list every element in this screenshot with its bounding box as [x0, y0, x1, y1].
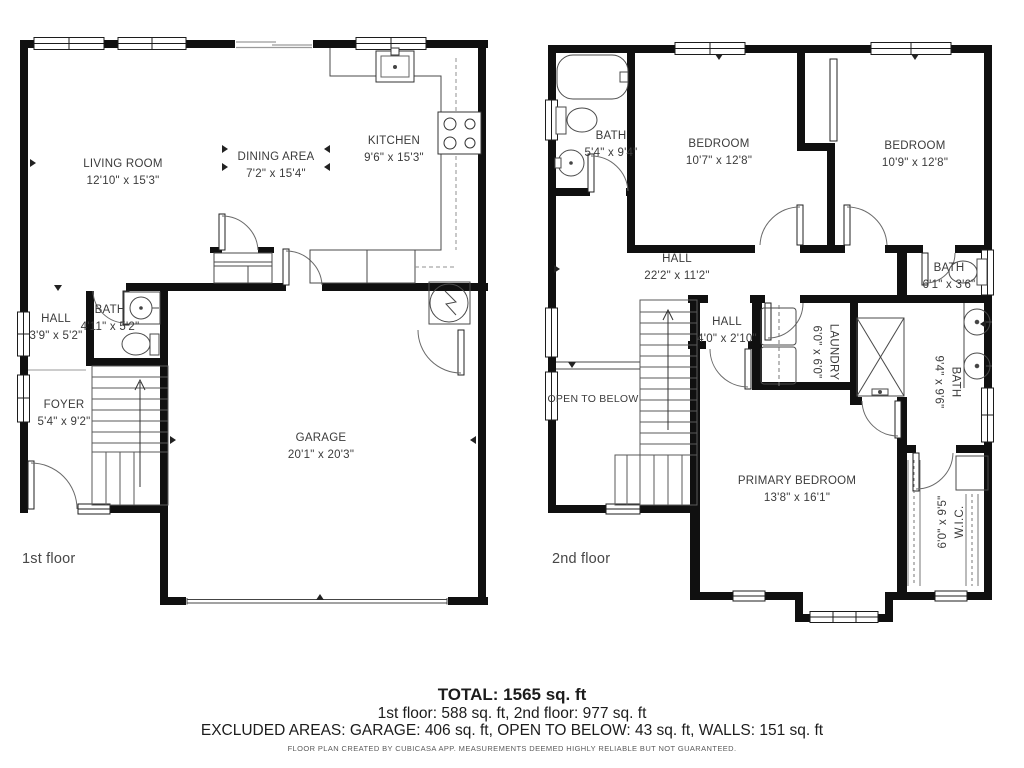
window [118, 38, 186, 50]
floor-plan-drawing [0, 0, 1024, 768]
pantry-door [219, 214, 258, 250]
room-name: W.I.C. [952, 495, 969, 548]
room-label-small-bath: BATH 6'1" x 3'6" [922, 260, 975, 295]
room-label-kitchen: KITCHEN 9'6" x 15'3" [364, 133, 424, 168]
room-name: HALL [644, 251, 709, 268]
primary-bedroom-door [710, 349, 751, 389]
room-dims: 12'10" x 15'3" [83, 173, 162, 190]
primary-bath-door [862, 401, 901, 438]
floor2-caption: 2nd floor [552, 551, 610, 567]
room-label-primary-bath: BATH 9'4" x 9'6" [929, 355, 964, 408]
summary-disclaimer: FLOOR PLAN CREATED BY CUBICASA APP. MEAS… [0, 744, 1024, 753]
room-dims: 20'1" x 20'3" [288, 447, 354, 464]
room-label-wic: 6'0" x 9'5" W.I.C. [935, 495, 970, 548]
room-dims: 6'1" x 3'6" [922, 277, 975, 294]
room-name: OPEN TO BELOW [548, 392, 639, 408]
room-name: BATH [584, 128, 637, 145]
summary-excluded-areas: EXCLUDED AREAS: GARAGE: 406 sq. ft, OPEN… [0, 722, 1024, 740]
open-to-below-railing [556, 362, 640, 369]
room-dims: 9'6" x 15'3" [364, 150, 424, 167]
room-label-hall-2f: HALL 22'2" x 11'2" [644, 251, 709, 286]
room-dims: 10'9" x 12'8" [882, 155, 948, 172]
room-name: BATH [922, 260, 975, 277]
summary-floor-areas: 1st floor: 588 sq. ft, 2nd floor: 977 sq… [0, 705, 1024, 723]
kitchen-sink [376, 48, 414, 82]
room-dims: 9'4" x 9'6" [929, 355, 946, 408]
room-dims: 13'8" x 16'1" [738, 490, 856, 507]
room-name: BEDROOM [686, 136, 752, 153]
bath1-toilet [122, 333, 159, 355]
pantry-closet [214, 253, 272, 283]
room-dims: 5'4" x 9'4" [584, 145, 637, 162]
window [982, 388, 994, 442]
floor1-windows [18, 38, 427, 515]
room-dims: 22'2" x 11'2" [644, 268, 709, 285]
room-name: LAUNDRY [824, 324, 841, 381]
shower [857, 318, 904, 396]
window [871, 43, 951, 55]
window [546, 308, 558, 357]
room-dims: 6'0" x 9'5" [935, 495, 952, 548]
summary-total: TOTAL: 1565 sq. ft [0, 685, 1024, 705]
garage-side-door [418, 330, 464, 375]
room-label-hall-1f: HALL 3'9" x 5'2" [29, 311, 82, 346]
window [18, 312, 30, 356]
room-name: FOYER [37, 397, 90, 414]
room-label-hall-small: HALL 4'0" x 2'10" [697, 314, 757, 349]
room-label-open-to-below: OPEN TO BELOW [548, 392, 639, 408]
room-label-living-room: LIVING ROOM 12'10" x 15'3" [83, 156, 162, 191]
room-label-garage: GARAGE 20'1" x 20'3" [288, 430, 354, 465]
room-label-bath-1f: BATH 4'11" x 5'2" [81, 302, 140, 337]
bedroom1-door [760, 205, 803, 245]
stairs-up-arrow [663, 310, 673, 430]
laundry-door [765, 303, 803, 340]
room-name: LIVING ROOM [83, 156, 162, 173]
bedroom2-door [844, 205, 887, 245]
room-name: KITCHEN [364, 133, 424, 150]
room-dims: 7'2" x 15'4" [238, 166, 315, 183]
window [935, 591, 967, 601]
window [733, 591, 765, 601]
room-name: HALL [29, 311, 82, 328]
floor1-stairs [92, 366, 168, 505]
closet-door-leaf [830, 59, 837, 141]
floor1-dimension-ticks [30, 145, 476, 600]
room-label-bedroom-2: BEDROOM 10'9" x 12'8" [882, 138, 948, 173]
room-dims: 4'0" x 2'10" [697, 331, 757, 348]
room-name: GARAGE [288, 430, 354, 447]
room-label-dining-area: DINING AREA 7'2" x 15'4" [238, 149, 315, 184]
room-label-primary-bedroom: PRIMARY BEDROOM 13'8" x 16'1" [738, 473, 856, 508]
window [34, 38, 104, 50]
bathtub [557, 55, 628, 99]
room-name: HALL [697, 314, 757, 331]
front-door [28, 461, 77, 509]
window [18, 375, 30, 422]
room-name: BEDROOM [882, 138, 948, 155]
room-dims: 4'11" x 5'2" [81, 319, 140, 336]
garage-entry-door [283, 249, 322, 285]
window [675, 43, 745, 55]
bath1-sink-2f [555, 150, 584, 176]
wic-door [913, 453, 953, 491]
room-dims: 5'4" x 9'2" [37, 414, 90, 431]
stove [438, 112, 481, 154]
floor1-caption: 1st floor [22, 551, 75, 567]
room-dims: 3'9" x 5'2" [29, 328, 82, 345]
bay-window [810, 612, 878, 623]
room-dims: 10'7" x 12'8" [686, 153, 752, 170]
room-name: BATH [81, 302, 140, 319]
room-label-bath-2f: BATH 5'4" x 9'4" [584, 128, 637, 163]
room-name: PRIMARY BEDROOM [738, 473, 856, 490]
room-name: BATH [946, 355, 963, 408]
room-name: DINING AREA [238, 149, 315, 166]
room-label-foyer: FOYER 5'4" x 9'2" [37, 397, 90, 432]
floor-plan-page: LIVING ROOM 12'10" x 15'3" DINING AREA 7… [0, 0, 1024, 768]
stairs-up-arrow [135, 380, 145, 487]
room-label-laundry: LAUNDRY 6'0" x 6'0" [807, 324, 842, 381]
room-dims: 6'0" x 6'0" [807, 324, 824, 381]
room-label-bedroom-1: BEDROOM 10'7" x 12'8" [686, 136, 752, 171]
